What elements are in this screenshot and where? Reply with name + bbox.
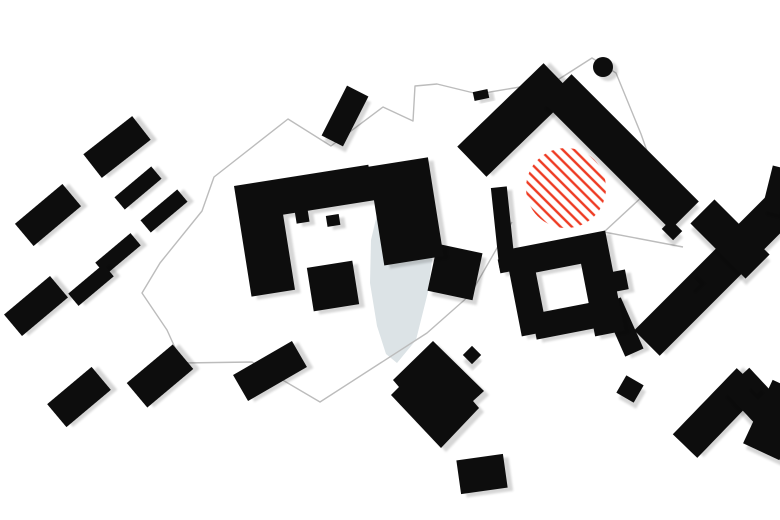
house-j [233,341,307,401]
site-plan-svg [0,0,780,520]
central-u-complex-part [277,165,373,215]
site-plan [0,0,780,520]
central-u-complex-part [326,214,341,227]
north-bar [322,86,369,147]
boundary-hut [473,89,490,101]
house-b [114,166,161,209]
east-diamond-dot [616,375,643,402]
central-annex [307,261,359,312]
house-g [4,276,68,336]
east-edge-bar [762,166,780,215]
small-diamond-dot [463,346,481,364]
house-h [47,367,111,427]
house-c [140,189,187,232]
house-a [83,116,150,178]
central-u-complex-part [295,211,310,224]
house-i [127,344,194,407]
house-d [15,184,81,246]
house-f [68,264,114,306]
round-tower [593,57,613,77]
south-rect [456,454,507,494]
red-hatched-intervention-area [526,148,606,228]
